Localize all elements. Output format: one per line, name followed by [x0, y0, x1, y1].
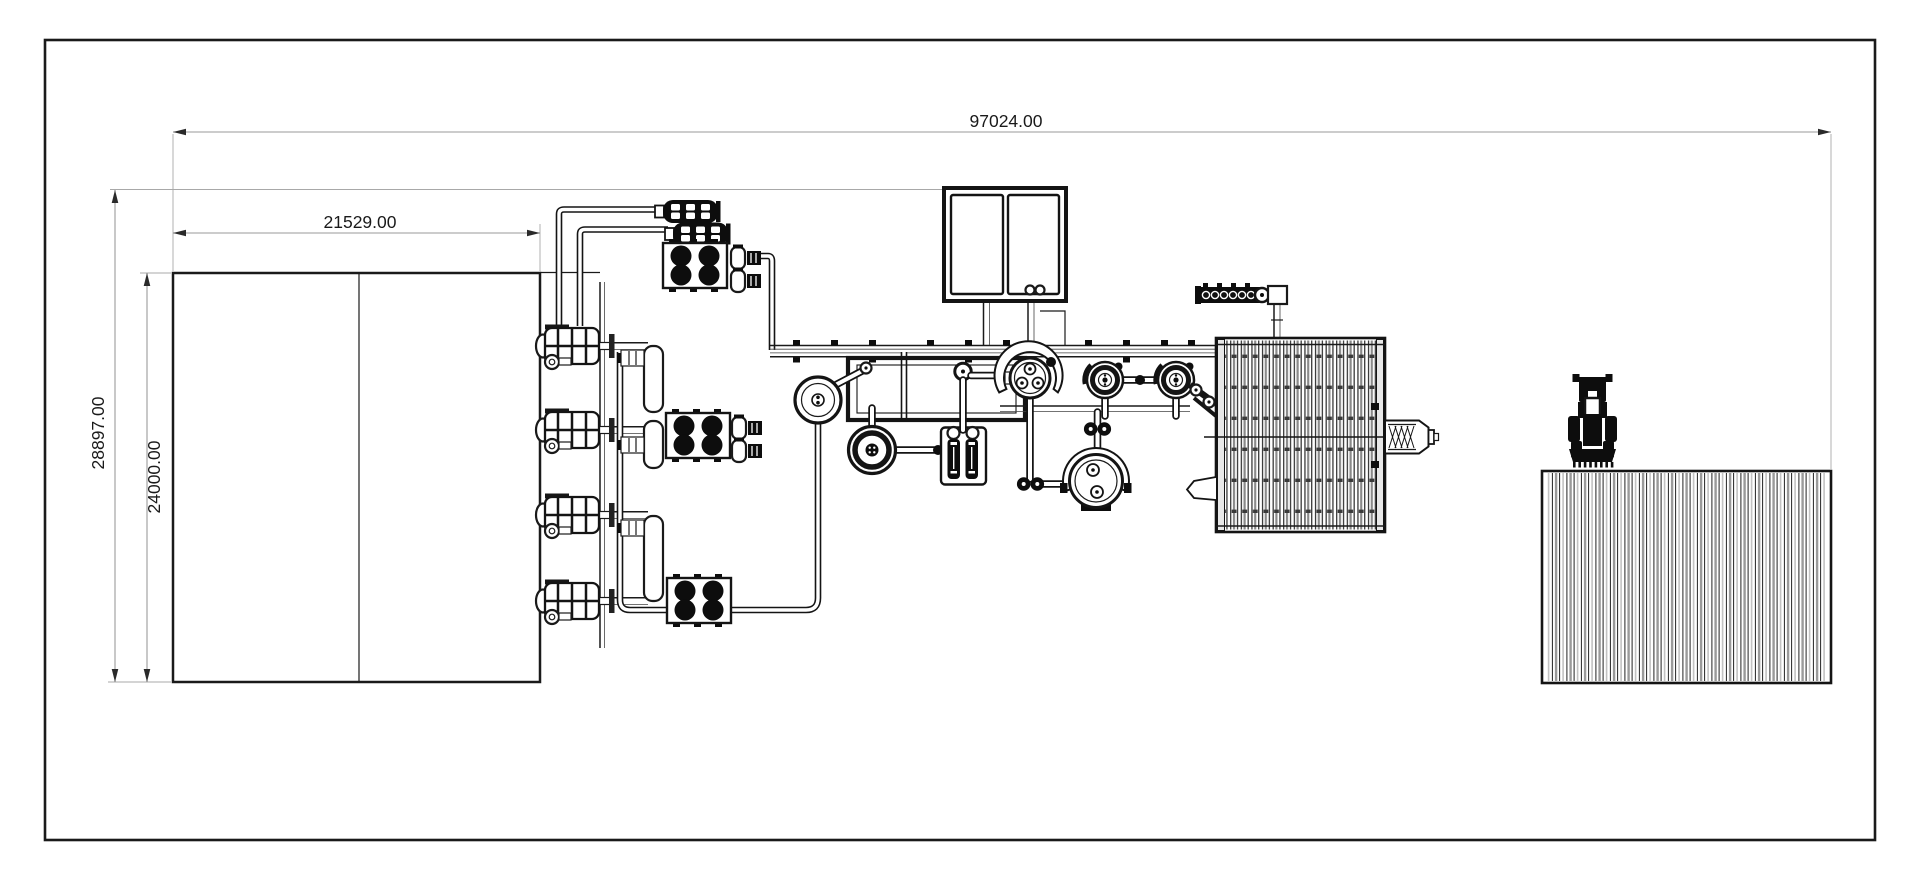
dim-site-depth-label: 28897.00: [88, 396, 108, 469]
dim-building-length-label: 21529.00: [324, 212, 397, 232]
dim-building-depth-label: 24000.00: [144, 440, 164, 513]
link-motor-1: [617, 350, 644, 366]
cad-plant-layout-page: 97024.00 21529.00 28897.00 24000.00: [0, 0, 1920, 878]
plant-layout-drawing: 97024.00 21529.00 28897.00 24000.00: [0, 0, 1920, 878]
support-stand: [941, 427, 986, 485]
link-motor-2: [617, 437, 644, 453]
stockpile-area: [1542, 471, 1831, 683]
building-outline: [173, 273, 600, 683]
rotary-drum: [1187, 338, 1392, 532]
link-motor-3: [617, 520, 644, 536]
dim-overall-length-label: 97024.00: [970, 111, 1043, 131]
roller-unit-bottom: [667, 574, 731, 627]
